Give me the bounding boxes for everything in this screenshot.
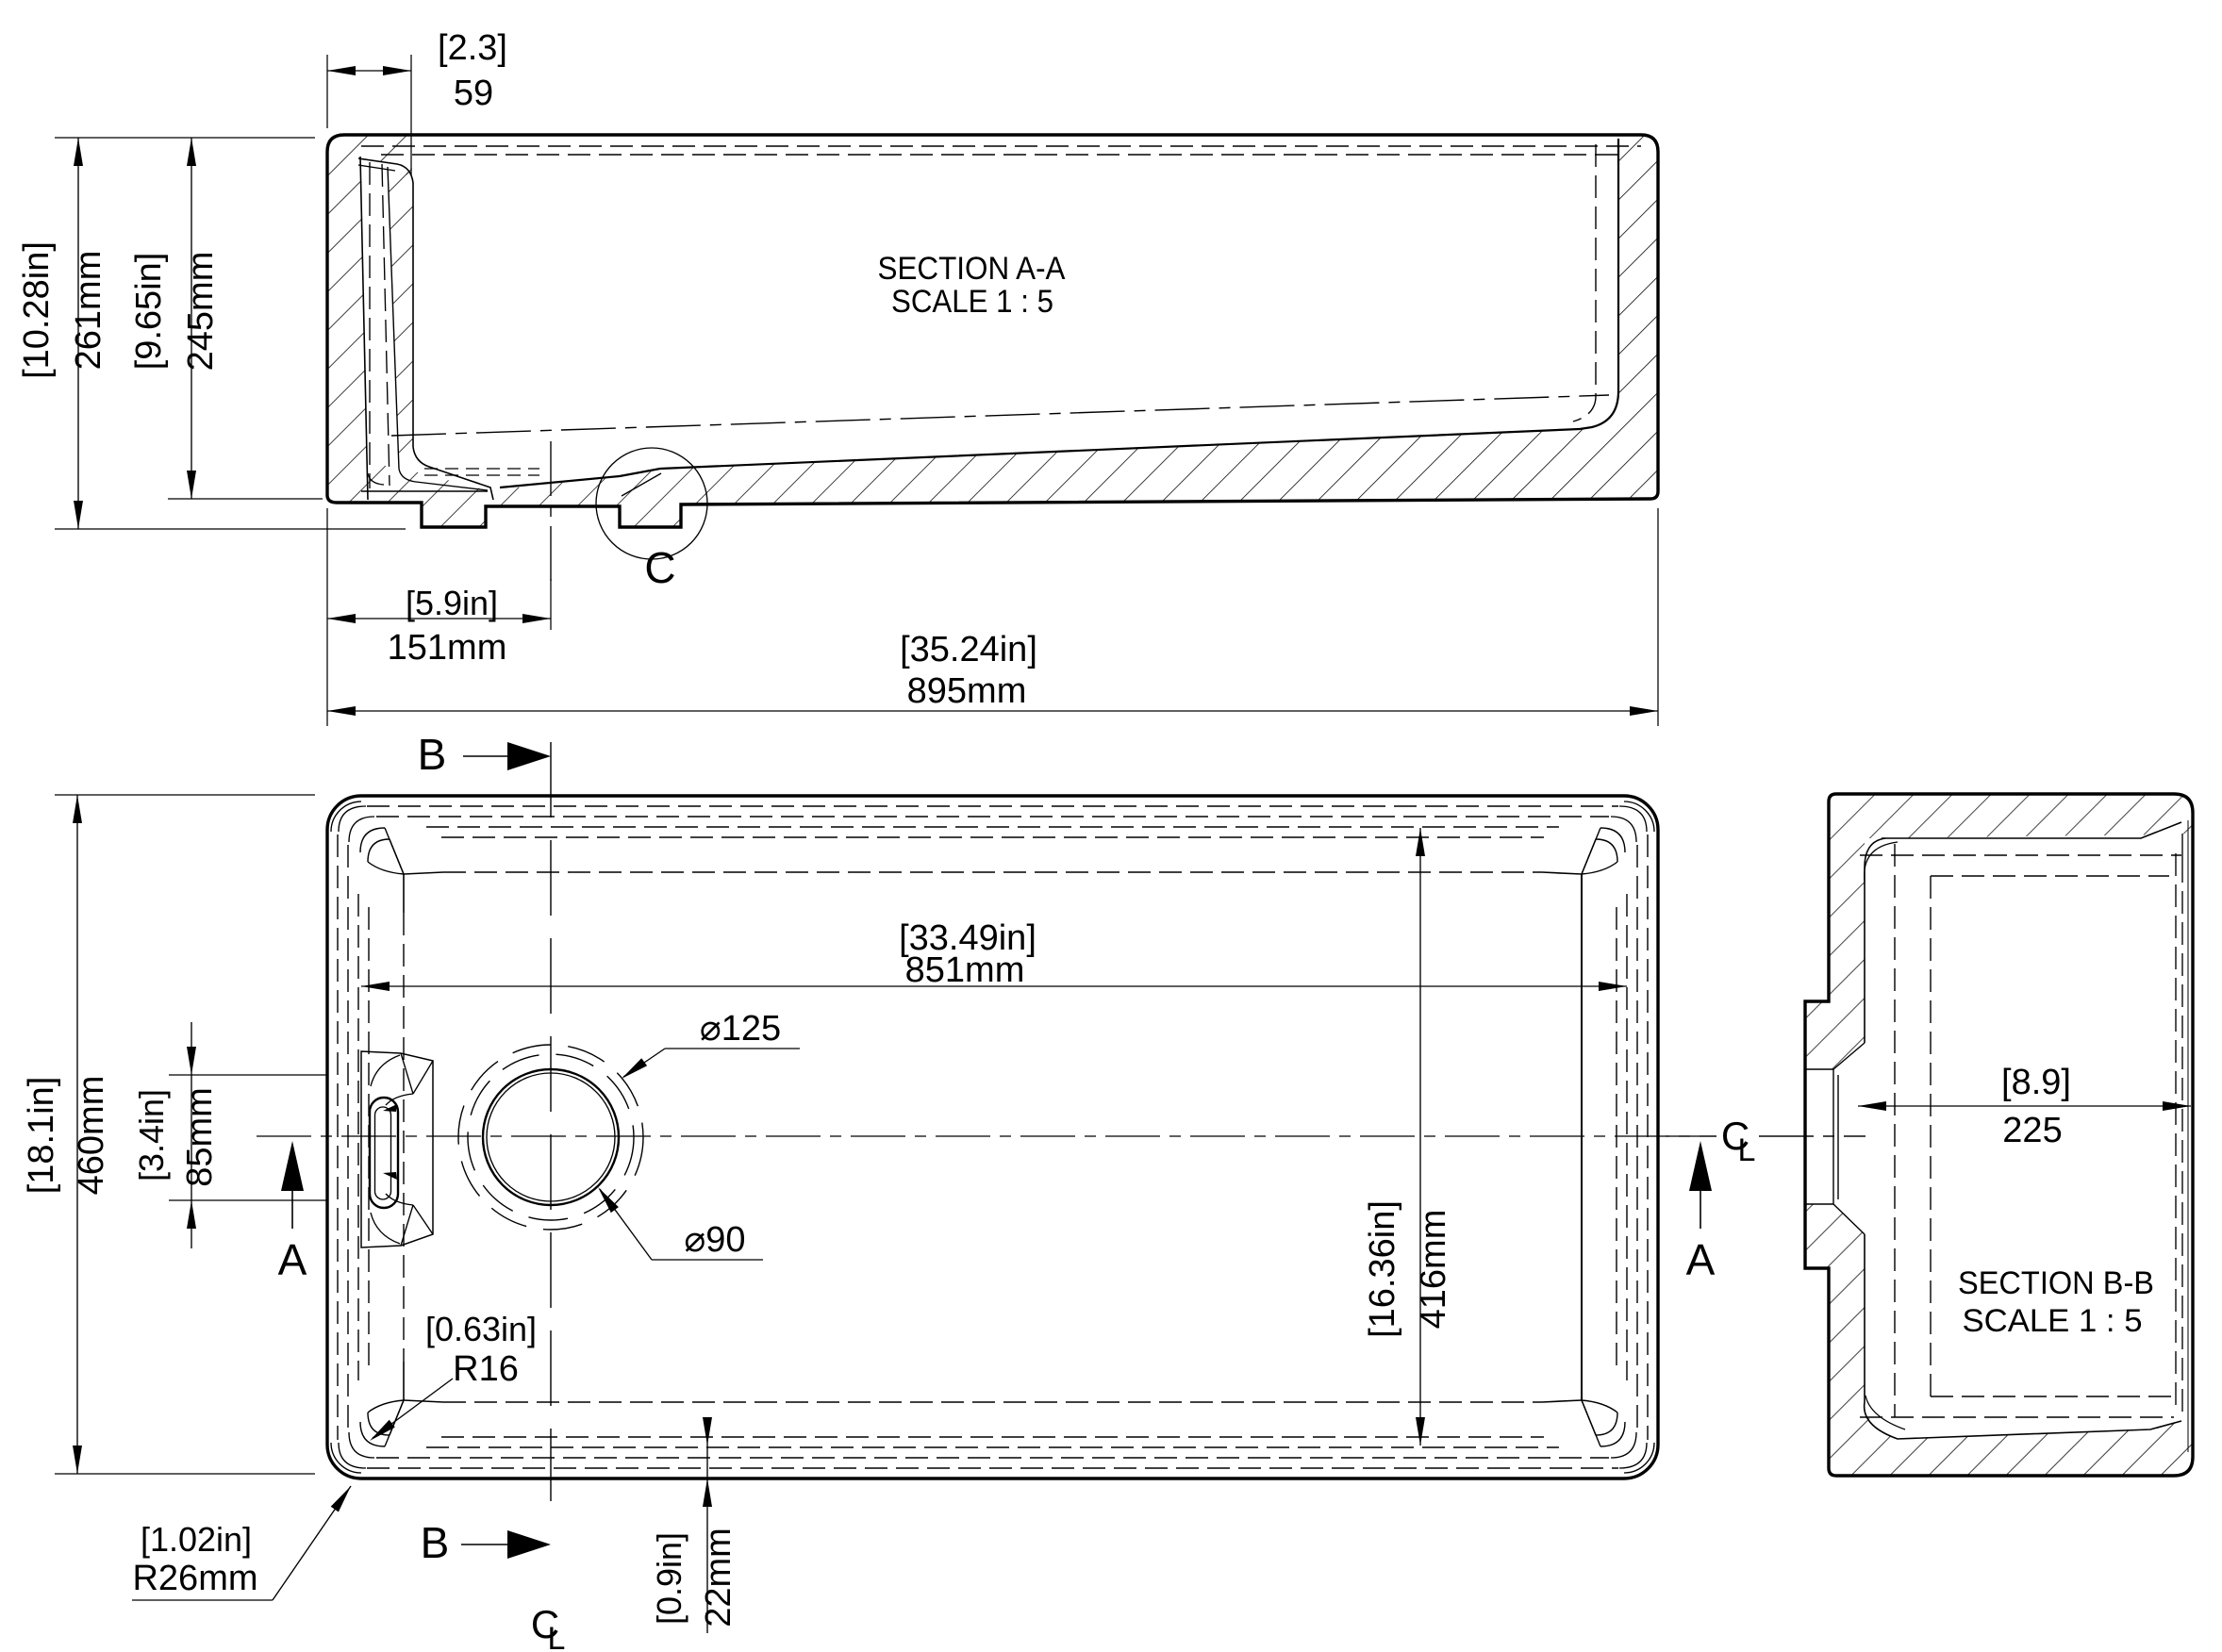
svg-text:151mm: 151mm [388,628,507,668]
svg-text:[0.9in]: [0.9in] [650,1532,688,1625]
svg-text:C: C [644,543,675,592]
svg-text:895mm: 895mm [907,671,1027,711]
svg-text:A: A [1686,1235,1716,1284]
svg-text:[3.4in]: [3.4in] [132,1089,171,1181]
svg-text:[10.28in]: [10.28in] [17,241,57,379]
svg-text:851mm: 851mm [905,950,1025,990]
svg-text:SCALE 1 : 5: SCALE 1 : 5 [891,284,1053,320]
svg-text:SECTION B-B: SECTION B-B [1958,1265,2154,1301]
svg-text:[9.65in]: [9.65in] [129,253,169,371]
svg-text:59: 59 [454,74,493,113]
svg-text:261mm: 261mm [69,251,108,371]
svg-text:416mm: 416mm [1414,1210,1453,1330]
svg-text:B: B [421,1518,450,1567]
svg-text:[0.63in]: [0.63in] [425,1310,537,1348]
svg-text:R16: R16 [453,1349,519,1389]
svg-text:85mm: 85mm [180,1087,220,1187]
svg-text:[2.3]: [2.3] [438,28,507,68]
svg-text:⌀125: ⌀125 [700,1009,781,1049]
svg-text:[8.9]: [8.9] [2001,1063,2071,1102]
svg-text:245mm: 245mm [181,252,221,372]
svg-text:B: B [418,730,447,779]
svg-text:[1.02in]: [1.02in] [141,1520,252,1559]
svg-text:[35.24in]: [35.24in] [900,630,1037,669]
svg-text:A: A [278,1235,307,1284]
svg-text:[5.9in]: [5.9in] [406,584,498,622]
svg-text:SECTION A-A: SECTION A-A [878,251,1066,287]
svg-text:R26mm: R26mm [132,1559,257,1598]
svg-text:460mm: 460mm [72,1076,111,1196]
svg-text:22mm: 22mm [699,1528,738,1627]
svg-text:[16.36in]: [16.36in] [1363,1200,1402,1338]
svg-text:[18.1in]: [18.1in] [22,1077,61,1195]
svg-text:⌀90: ⌀90 [684,1220,745,1260]
svg-text:L: L [548,1621,566,1652]
svg-text:L: L [1738,1132,1756,1168]
svg-text:SCALE 1 : 5: SCALE 1 : 5 [1963,1303,2143,1339]
svg-text:225: 225 [2002,1111,2062,1150]
